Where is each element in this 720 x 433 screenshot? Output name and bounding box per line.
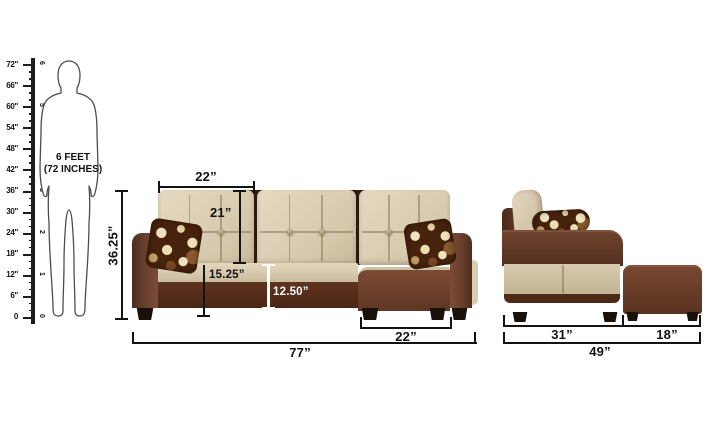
dim-cap [503,315,505,326]
human-silhouette [38,59,100,320]
ruler-major-tick [23,64,35,66]
ruler-minor-tick [29,113,35,115]
dim-cap [622,315,624,326]
sofa-front-view [132,188,478,322]
dim-base-height-line [267,264,270,309]
ruler-inch-label: 6" [2,291,18,300]
sofa-foot [429,308,446,320]
tufting-button [287,229,293,235]
ruler-major-tick [23,148,35,150]
seat-edge-sliver [472,260,478,305]
tufting-button [386,229,392,235]
figure-height-line2: (72 INCHES) [40,164,106,176]
ruler-major-tick [23,254,35,256]
ruler-minor-tick [29,155,35,157]
ruler-major-tick [23,191,35,193]
dim-base-height-label: 12.50” [273,286,309,298]
dim-overall-height-cap-bottom [115,318,128,320]
ruler-major-tick [23,296,35,298]
ruler-minor-tick [29,162,35,164]
sofa-dimension-diagram: 72" 66" 60" 54" 48" 42" 36" 30" 24" 18" … [0,0,720,433]
ruler-minor-tick [29,219,35,221]
ruler-major-tick [23,127,35,129]
sofa-foot [602,312,618,322]
dim-cap [233,190,246,192]
ruler-major-tick [23,85,35,87]
ruler-minor-tick [29,176,35,178]
ruler-inch-label: 12" [2,270,18,279]
ruler-minor-tick [29,198,35,200]
cushion-seam [388,195,390,261]
ruler-minor-tick [29,141,35,143]
dim-overall-height-cap-top [115,190,128,192]
ruler-inch-label: 54" [2,123,18,132]
dim-cap [197,315,210,317]
ruler-minor-tick [29,205,35,207]
ruler-major-tick [23,317,35,319]
dim-overall-height-label: 36.25” [105,225,120,265]
dim-cap [262,307,275,309]
dim-cushion-width-line [158,186,255,188]
ruler-minor-tick [29,78,35,80]
back-cushion-middle [257,190,356,265]
cushion-seam [321,195,323,261]
dim-cap [503,332,505,344]
ruler-minor-tick [29,120,35,122]
ruler-inch-label: 0 [2,312,18,321]
side-arm-panel [502,230,623,266]
dim-ottoman-width-label: 18” [637,327,697,342]
dim-seat-depth-label: 31” [532,327,592,342]
ruler-minor-tick [29,99,35,101]
dim-cap [450,317,452,328]
ruler-major-tick [23,212,35,214]
ruler-major-tick [23,233,35,235]
dim-backrest-height-label: 21” [210,205,232,220]
ruler-minor-tick [29,226,35,228]
ruler-minor-tick [29,183,35,185]
dim-seat-height-line [203,265,205,317]
sofa-foot [136,308,154,320]
ruler-minor-tick [29,303,35,305]
dim-cap [474,332,476,344]
ruler-major-tick [23,169,35,171]
dim-backrest-height-line [239,190,241,264]
ruler-inch-label: 48" [2,144,18,153]
dim-cap [699,332,701,344]
ruler-minor-tick [29,268,35,270]
side-panel-seam [562,265,564,293]
side-base-strip [504,294,620,303]
ruler-minor-tick [29,289,35,291]
cushion-seam [289,195,291,261]
dim-cap [233,262,246,264]
ruler-minor-tick [29,247,35,249]
side-lower-panel [504,264,620,294]
ruler-inch-label: 18" [2,249,18,258]
dim-cap [360,317,362,328]
ruler-minor-tick [29,71,35,73]
ruler-inch-label: 36" [2,186,18,195]
dim-cap [699,315,701,326]
floral-pillow-right [403,218,458,271]
ruler-minor-tick [29,261,35,263]
ruler-minor-tick [29,134,35,136]
dim-overall-width-line [132,342,477,344]
dim-cap [158,181,160,193]
figure-height-line1: 6 FEET [40,152,106,164]
sofa-foot [451,308,468,320]
sofa-foot [361,308,379,320]
ruler-major-tick [23,275,35,277]
ruler-inch-label: 24" [2,228,18,237]
ruler-inch-label: 30" [2,207,18,216]
chaise-section [358,267,450,311]
ruler-major-tick [23,106,35,108]
ruler-inch-label: 66" [2,81,18,90]
ruler-inch-label: 72" [2,60,18,69]
tufting-button [319,229,325,235]
cushion-seam [260,231,353,233]
sofa-base [158,282,358,308]
ottoman-foot [686,312,699,321]
dim-cap [132,332,134,344]
sofa-foot [512,312,528,322]
ottoman-foot [626,312,639,321]
ruler-inch-label: 60" [2,102,18,111]
sofa-side-view [502,190,702,322]
dim-overall-width-label: 77” [270,345,330,360]
tufting-button [218,229,224,235]
dim-overall-depth-label: 49” [570,344,630,359]
dim-cushion-width-label: 22” [176,169,236,184]
ottoman [623,265,702,314]
dim-seat-height-label: 15.25” [209,269,245,281]
floral-pillow-left [144,217,203,275]
figure-height-label: 6 FEET (72 INCHES) [40,152,106,175]
ruler-inch-label: 42" [2,165,18,174]
dim-cap [253,181,255,193]
ruler-minor-tick [29,240,35,242]
ruler-minor-tick [29,310,35,312]
dim-cap [262,264,275,266]
ruler-minor-tick [29,92,35,94]
ruler-minor-tick [29,282,35,284]
